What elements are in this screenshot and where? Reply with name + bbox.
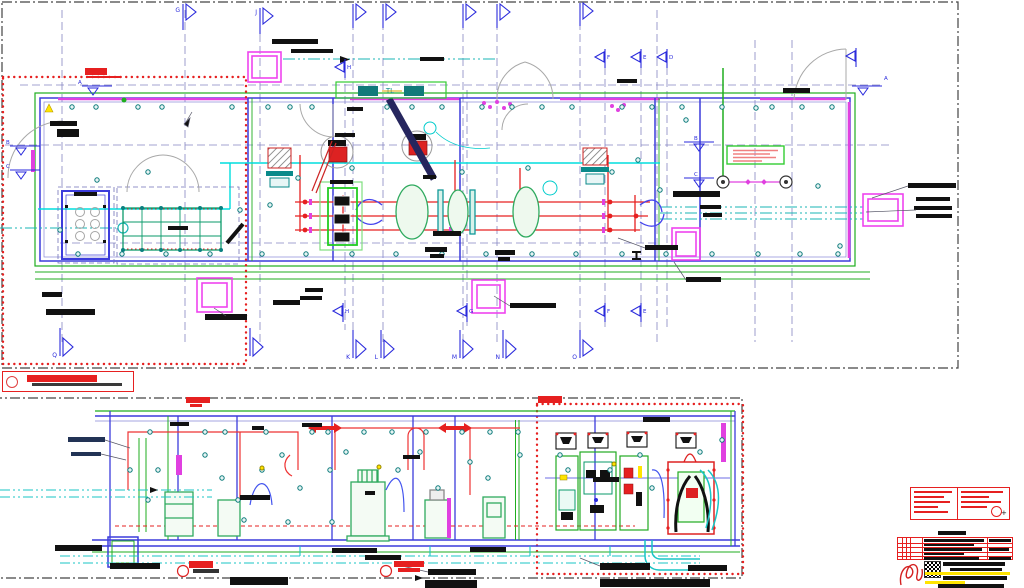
column-mark (227, 224, 243, 243)
section-marker: F (595, 49, 610, 68)
grid-lines (5, 10, 890, 342)
svg-text:B: B (694, 136, 698, 142)
riser-dimension (717, 68, 792, 188)
grid-letter: Q (52, 352, 57, 359)
label-leaders-upper (184, 112, 916, 316)
revision-tag (186, 397, 210, 403)
svg-text:C: C (694, 172, 698, 178)
svg-text:F: F (607, 309, 610, 315)
lower-equipment (165, 470, 505, 541)
revision-table (897, 537, 1013, 560)
main-pump-unit (347, 470, 389, 541)
cad-linework: TL (0, 0, 1024, 588)
svg-text:E: E (643, 309, 647, 315)
title-text-bar (950, 568, 1002, 572)
revision-bubble-icon (6, 376, 18, 388)
level-marker: B (684, 136, 714, 151)
svg-text:A: A (884, 76, 888, 82)
grid-flag (497, 4, 510, 28)
hatched-pads (266, 148, 609, 187)
revision-highlight (27, 375, 97, 382)
keynote-box (727, 146, 784, 164)
grid-letter: G (175, 7, 180, 14)
drawing-sheet: TL (0, 0, 1024, 588)
highlight-bar (925, 572, 1010, 575)
section-marker: G (457, 303, 473, 322)
revision-tags (85, 68, 562, 407)
revision-cloud-2 (537, 404, 743, 574)
revision-row-text (924, 557, 979, 560)
grid-flag: J (254, 8, 273, 34)
title-block (897, 561, 1024, 588)
title-text-bar (943, 576, 1007, 580)
revision-text-bar (32, 383, 122, 386)
pump-bodies (396, 185, 539, 239)
beam-symbol (632, 251, 641, 260)
revision-row-text (924, 548, 982, 551)
qr-code-icon (925, 562, 940, 577)
grid-letter: J (254, 9, 257, 16)
svg-text:F: F (607, 55, 610, 61)
upper-plan-walls (31, 93, 870, 279)
grid-flag: K (346, 330, 366, 361)
grid-flag: N (496, 330, 517, 361)
svg-text:G: G (469, 309, 473, 315)
section-marker: E (631, 303, 647, 322)
svg-text:H: H (347, 65, 351, 71)
upper-equipment: TL (45, 52, 903, 313)
cable-tray: TL (336, 82, 446, 98)
grid-flag (383, 4, 396, 28)
revision-note-box (2, 371, 134, 392)
grid-letter: L (375, 354, 379, 361)
revision-tag (85, 68, 107, 75)
grid-letter: N (496, 354, 501, 361)
grid-letter: M (452, 354, 457, 361)
svg-text:B: B (6, 140, 10, 146)
grid-flags-top: G J (175, 3, 593, 34)
revision-row-text (924, 544, 974, 547)
level-marker: A (852, 76, 888, 95)
section-marker: H (333, 303, 349, 322)
grid-flag: L (375, 330, 394, 361)
stamp-column (911, 488, 958, 519)
svg-text:C: C (6, 164, 10, 170)
revision-row-text (924, 553, 964, 556)
svg-text:A: A (78, 80, 82, 86)
title-text-bar (938, 584, 1004, 588)
grid-flag: G (175, 4, 196, 30)
grid-flag (353, 4, 366, 28)
electrical-cabinets (556, 432, 716, 534)
grid-letter: O (572, 354, 577, 361)
grid-flag: O (572, 330, 593, 361)
section-marker: F (595, 303, 610, 322)
revision-tag (538, 396, 562, 403)
signature-icon (897, 561, 927, 588)
stamp-column: + (958, 488, 1008, 519)
svg-text:H: H (345, 309, 349, 315)
grid-flag (463, 4, 476, 28)
grid-letter: K (346, 354, 351, 361)
stamp-cross-icon: + (1001, 510, 1007, 516)
level-marker: C (684, 172, 714, 187)
section-marker: D (657, 49, 673, 68)
grid-flag (250, 328, 263, 356)
text-label-bars-lower (55, 417, 727, 588)
section-marker: E (631, 49, 647, 68)
revision-row-text (924, 539, 984, 542)
title-text-bar (943, 562, 1005, 566)
svg-text:E: E (643, 55, 647, 61)
text-label-bar (938, 531, 966, 535)
grid-flags-bottom: Q K L M N O (52, 328, 593, 361)
stair-run (389, 99, 434, 179)
approval-stamp: + (910, 487, 1010, 520)
text-label-bars-upper (42, 39, 956, 320)
wall-boxes (556, 432, 696, 449)
section-marker (846, 48, 856, 67)
grid-flag: M (452, 330, 473, 361)
svg-text:D: D (669, 55, 673, 61)
viewport-borders (0, 2, 958, 578)
grid-flag: Q (52, 328, 73, 359)
grid-flag (580, 3, 593, 26)
transformer-cabinet (62, 191, 109, 259)
